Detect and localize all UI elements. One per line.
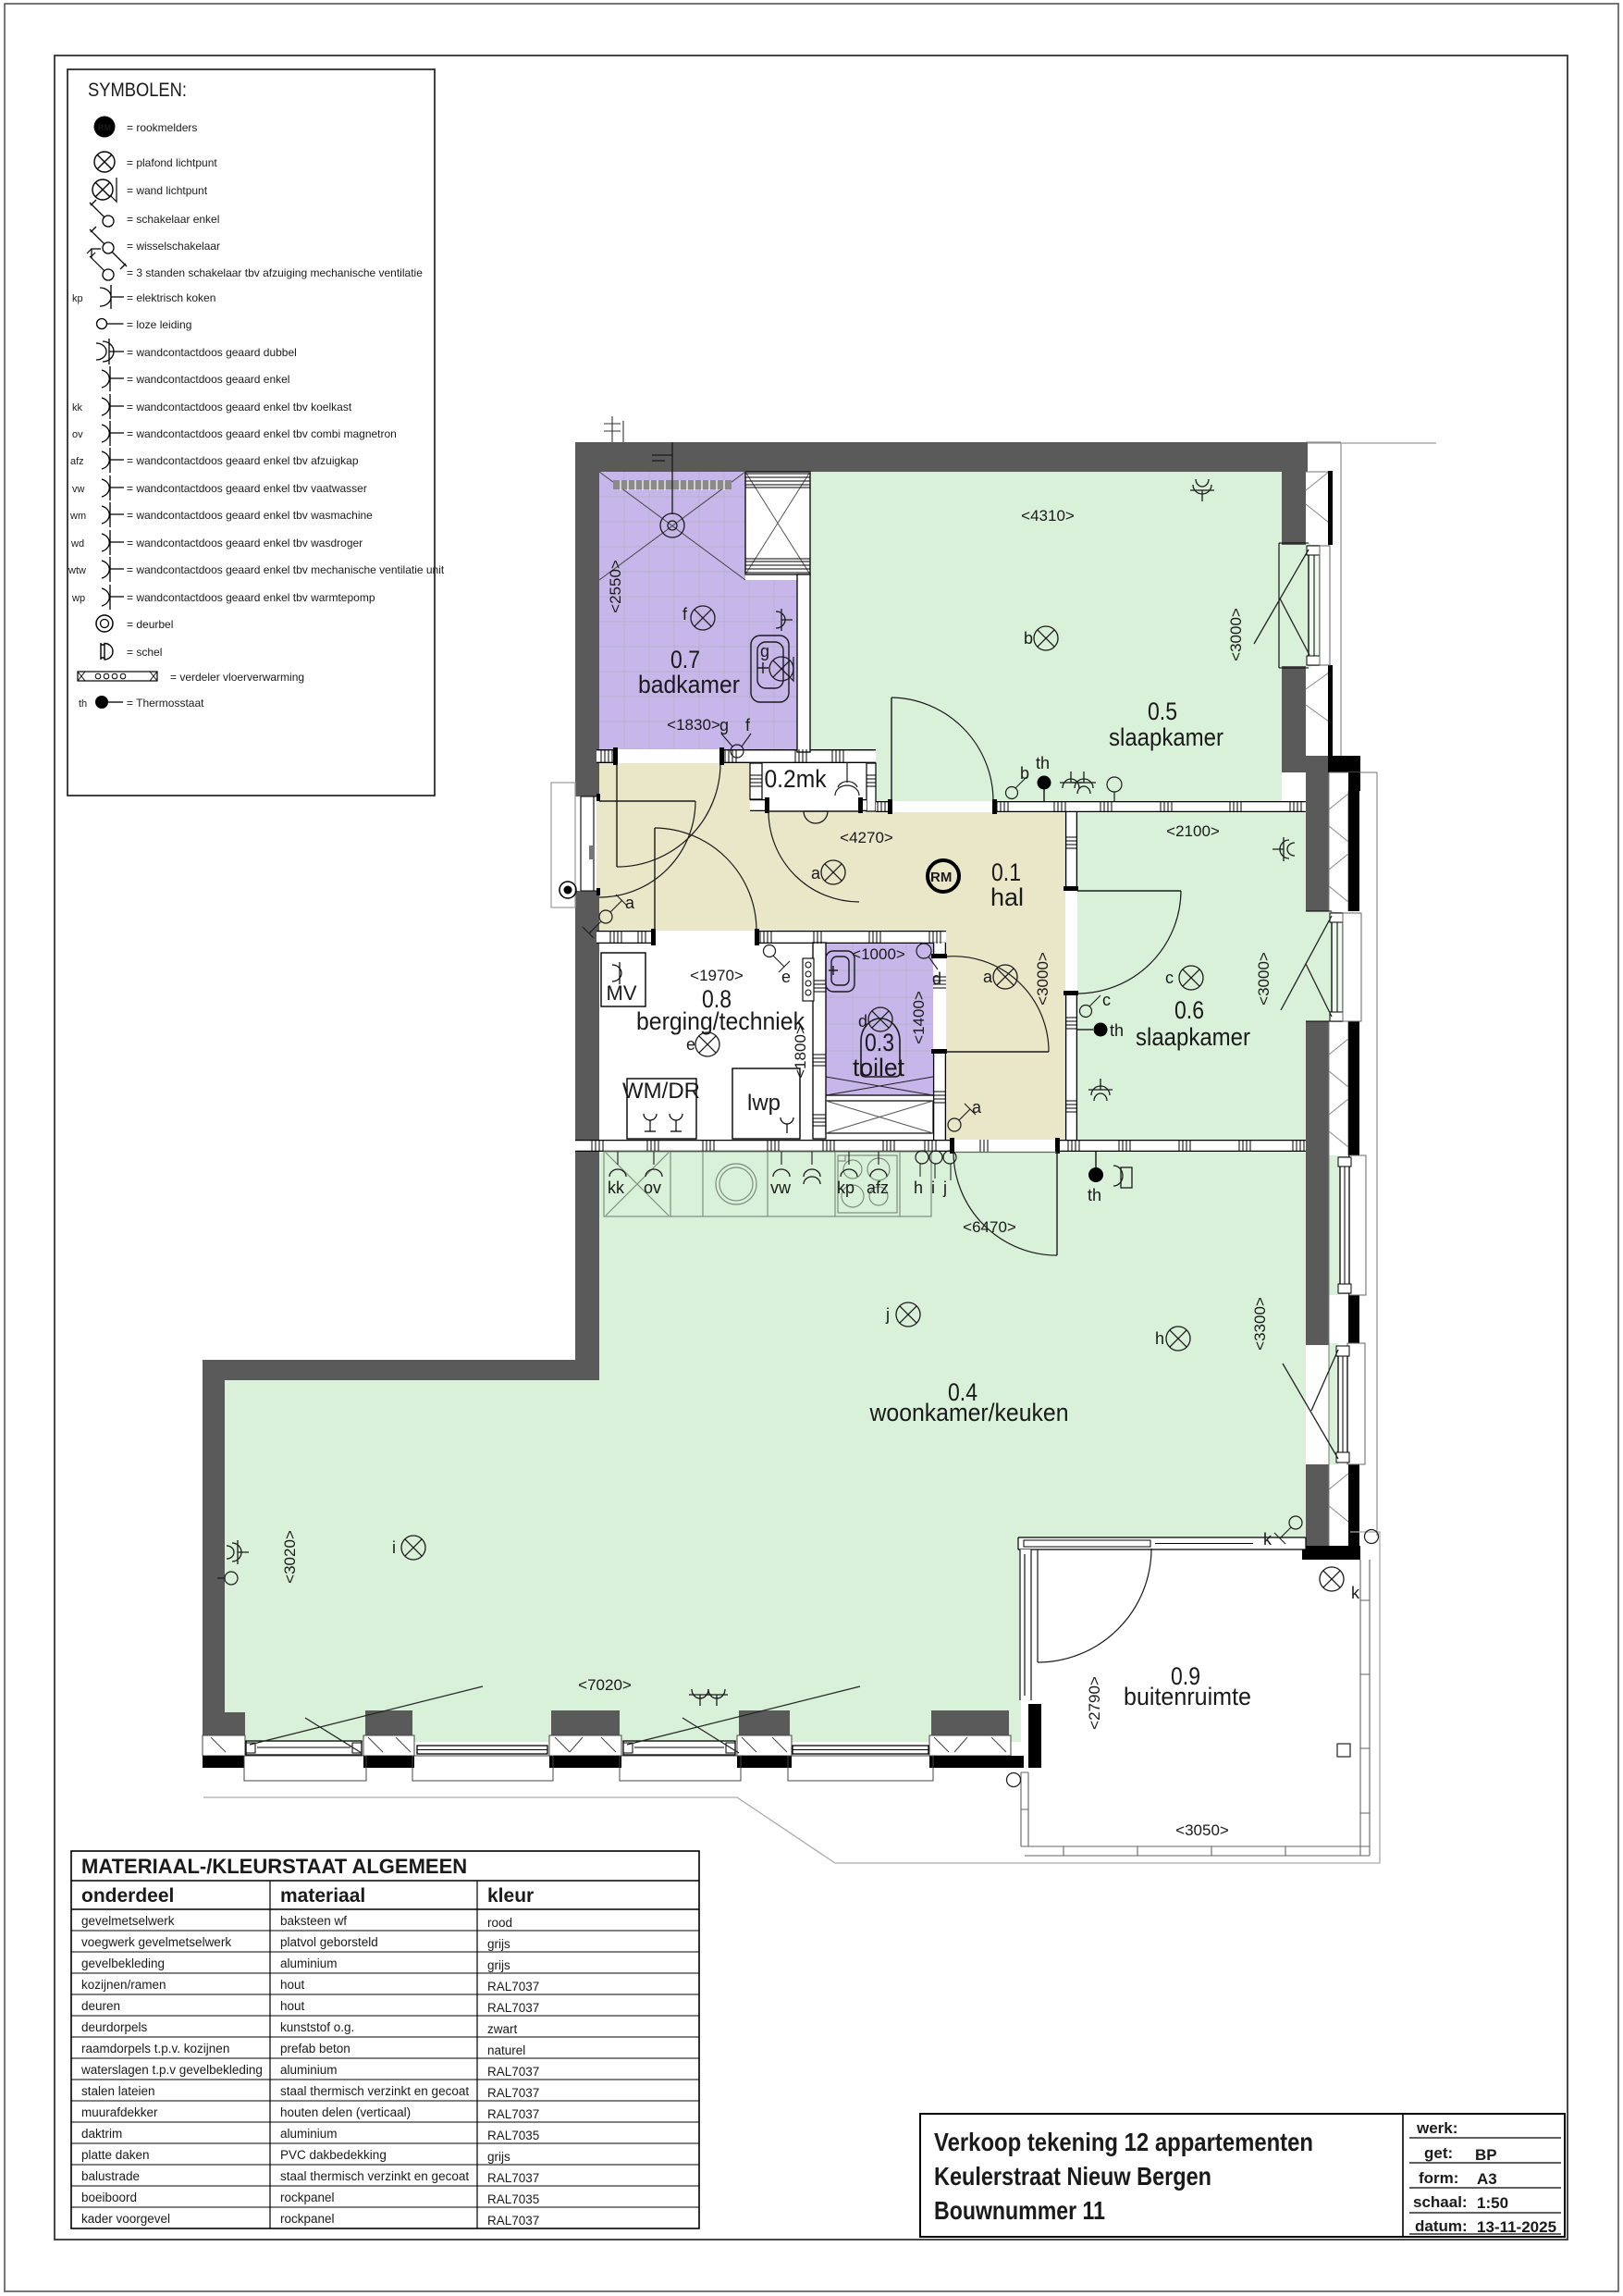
svg-text:<1400>: <1400> [910, 991, 928, 1044]
svg-text:houten delen (verticaal): houten delen (verticaal) [280, 2105, 411, 2119]
svg-text:vw: vw [72, 484, 85, 495]
svg-text:onderdeel: onderdeel [81, 1885, 174, 1907]
svg-text:<2790>: <2790> [1086, 1676, 1103, 1730]
svg-text:Verkoop tekening 12 appartemen: Verkoop tekening 12 appartementen [934, 2128, 1313, 2156]
svg-text:<4310>: <4310> [1021, 507, 1075, 525]
svg-text:grijs: grijs [487, 2150, 510, 2164]
svg-text:th: th [79, 698, 87, 710]
svg-text:vw: vw [770, 1179, 792, 1197]
svg-text:wtw: wtw [68, 565, 86, 576]
svg-text:voegwerk gevelmetselwerk: voegwerk gevelmetselwerk [81, 1935, 231, 1949]
svg-text:0.6: 0.6 [1174, 996, 1204, 1024]
svg-text:c: c [1165, 969, 1174, 987]
svg-text:get:: get: [1424, 2144, 1453, 2162]
svg-text:= Thermosstaat: = Thermosstaat [127, 697, 204, 710]
svg-text:RAL7037: RAL7037 [487, 1980, 539, 1994]
svg-text:0.7: 0.7 [670, 646, 700, 673]
svg-text:muurafdekker: muurafdekker [81, 2105, 158, 2119]
svg-text:deuren: deuren [81, 1999, 120, 2013]
svg-text:slaapkamer: slaapkamer [1109, 723, 1223, 751]
svg-text:RAL7037: RAL7037 [487, 2107, 539, 2121]
svg-text:d: d [932, 969, 941, 988]
svg-text:slaapkamer: slaapkamer [1136, 1023, 1250, 1051]
svg-text:a: a [972, 1098, 982, 1117]
svg-text:<3050>: <3050> [1175, 1821, 1229, 1839]
svg-text:materiaal: materiaal [280, 1885, 365, 1907]
svg-text:<2550>: <2550> [607, 560, 624, 613]
svg-text:13-11-2025: 13-11-2025 [1477, 2218, 1556, 2236]
svg-text:= wandcontactdoos geaard enkel: = wandcontactdoos geaard enkel tbv wasdr… [127, 537, 363, 549]
svg-text:e: e [781, 968, 791, 986]
svg-text:WM/DR: WM/DR [622, 1079, 700, 1104]
svg-text:= verdeler vloerverwarming: = verdeler vloerverwarming [170, 671, 304, 684]
svg-text:aluminium: aluminium [280, 1957, 338, 1970]
svg-text:th: th [1110, 1021, 1124, 1040]
svg-text:stalen lateien: stalen lateien [81, 2084, 155, 2098]
svg-text:hout: hout [280, 1978, 305, 1992]
svg-text:berging/techniek: berging/techniek [636, 1007, 805, 1035]
svg-text:<1800>: <1800> [792, 1025, 809, 1079]
svg-text:toilet: toilet [853, 1054, 904, 1081]
svg-text:<3000>: <3000> [1034, 952, 1051, 1006]
svg-text:RAL7037: RAL7037 [487, 2065, 539, 2079]
svg-text:0.5: 0.5 [1148, 697, 1177, 725]
svg-text:i: i [392, 1538, 396, 1557]
svg-text:k: k [1263, 1530, 1273, 1549]
svg-text:BP: BP [1475, 2146, 1497, 2164]
svg-text:lwp: lwp [747, 1091, 781, 1116]
svg-text:= schel: = schel [127, 646, 162, 659]
svg-text:schaal:: schaal: [1413, 2193, 1468, 2211]
svg-text:kunststof o.g.: kunststof o.g. [280, 2020, 354, 2034]
svg-text:= wandcontactdoos geaard enkel: = wandcontactdoos geaard enkel tbv afzui… [127, 454, 359, 467]
svg-text:kp: kp [72, 293, 83, 304]
svg-text:<3300>: <3300> [1251, 1297, 1269, 1351]
svg-text:kleur: kleur [487, 1885, 534, 1907]
svg-text:<1970>: <1970> [690, 967, 744, 984]
svg-text:= wand lichtpunt: = wand lichtpunt [127, 184, 208, 197]
svg-text:h: h [1155, 1329, 1164, 1348]
svg-text:grijs: grijs [487, 1937, 510, 1951]
svg-text:RAL7037: RAL7037 [487, 2086, 539, 2100]
svg-text:rockpanel: rockpanel [280, 2191, 335, 2204]
svg-text:waterslagen t.p.v gevelbekledi: waterslagen t.p.v gevelbekleding [80, 2063, 263, 2077]
svg-text:aluminium: aluminium [280, 2127, 338, 2141]
svg-text:c: c [1102, 991, 1111, 1009]
svg-text:RAL7037: RAL7037 [487, 2001, 539, 2015]
svg-text:MATERIAAL-/KLEURSTAAT ALGEMEEN: MATERIAAL-/KLEURSTAAT ALGEMEEN [81, 1855, 467, 1878]
svg-text:= 3 standen schakelaar tbv afz: = 3 standen schakelaar tbv afzuiging mec… [127, 266, 423, 279]
svg-text:= loze leiding: = loze leiding [127, 318, 191, 331]
svg-text:d: d [858, 1012, 867, 1031]
svg-text:aluminium: aluminium [280, 2063, 338, 2077]
svg-text:RAL7037: RAL7037 [487, 2171, 539, 2185]
svg-text:ov: ov [72, 429, 83, 440]
svg-text:0.1: 0.1 [991, 858, 1021, 886]
svg-text:SYMBOLEN:: SYMBOLEN: [88, 80, 187, 101]
svg-text:0.2mk: 0.2mk [765, 765, 827, 793]
svg-text:badkamer: badkamer [638, 671, 740, 698]
svg-text:gevelbekleding: gevelbekleding [81, 1957, 165, 1970]
svg-text:<7020>: <7020> [578, 1676, 632, 1694]
svg-text:= plafond lichtpunt: = plafond lichtpunt [127, 156, 217, 169]
svg-text:= deurbel: = deurbel [127, 618, 173, 631]
svg-text:rockpanel: rockpanel [280, 2212, 335, 2226]
svg-text:= wandcontactdoos geaard enkel: = wandcontactdoos geaard enkel tbv warmt… [127, 591, 375, 604]
svg-text:deurdorpels: deurdorpels [81, 2020, 148, 2034]
svg-text:prefab beton: prefab beton [280, 2042, 350, 2055]
svg-text:rood: rood [487, 1916, 512, 1930]
svg-text:a: a [625, 894, 635, 912]
svg-text:MV: MV [607, 981, 637, 1005]
svg-text:form:: form: [1419, 2169, 1458, 2187]
svg-text:<2100>: <2100> [1166, 822, 1220, 840]
svg-text:= wandcontactdoos geaard enkel: = wandcontactdoos geaard enkel tbv koelk… [127, 401, 352, 414]
svg-text:datum:: datum: [1415, 2217, 1468, 2235]
svg-text:naturel: naturel [487, 2043, 525, 2057]
svg-text:raamdorpels t.p.v. kozijnen: raamdorpels t.p.v. kozijnen [81, 2042, 229, 2055]
svg-text:= schakelaar enkel: = schakelaar enkel [127, 213, 219, 226]
svg-text:<1830>: <1830> [667, 716, 720, 734]
svg-text:PVC dakbedekking: PVC dakbedekking [280, 2148, 387, 2162]
svg-text:b: b [1024, 629, 1033, 648]
svg-text:th: th [1088, 1186, 1101, 1204]
svg-text:staal thermisch verzinkt en ge: staal thermisch verzinkt en gecoat [280, 2084, 469, 2098]
svg-text:platvol geborsteld: platvol geborsteld [280, 1935, 378, 1949]
svg-text:= wandcontactdoos geaard enkel: = wandcontactdoos geaard enkel tbv wasma… [127, 509, 373, 522]
svg-text:RM: RM [98, 123, 111, 132]
svg-text:RAL7035: RAL7035 [487, 2129, 539, 2142]
svg-text:<1000>: <1000> [852, 945, 905, 963]
svg-text:wm: wm [69, 511, 86, 522]
svg-text:kozijnen/ramen: kozijnen/ramen [81, 1978, 166, 1992]
svg-text:b: b [1020, 764, 1029, 783]
svg-text:= wandcontactdoos geaard enkel: = wandcontactdoos geaard enkel tbv mecha… [127, 563, 445, 576]
svg-text:g: g [719, 716, 729, 734]
svg-text:staal thermisch verzinkt en ge: staal thermisch verzinkt en gecoat [280, 2169, 469, 2183]
svg-text:= wisselschakelaar: = wisselschakelaar [127, 240, 220, 253]
svg-text:j: j [885, 1305, 890, 1324]
svg-text:hout: hout [280, 1999, 305, 2013]
svg-text:= wandcontactdoos geaard dubbe: = wandcontactdoos geaard dubbel [127, 346, 297, 359]
svg-text:baksteen wf: baksteen wf [280, 1914, 347, 1928]
svg-text:wd: wd [70, 538, 84, 549]
svg-text:g: g [760, 642, 769, 660]
svg-text:Bouwnummer 11: Bouwnummer 11 [934, 2196, 1105, 2225]
svg-text:= rookmelders: = rookmelders [127, 121, 197, 134]
svg-text:= wandcontactdoos geaard enkel: = wandcontactdoos geaard enkel tbv vaatw… [127, 482, 367, 495]
svg-text:platte daken: platte daken [81, 2148, 150, 2162]
svg-text:Keulerstraat Nieuw Bergen: Keulerstraat Nieuw Bergen [934, 2162, 1211, 2191]
svg-text:boeiboord: boeiboord [81, 2191, 137, 2204]
svg-text:grijs: grijs [487, 1958, 510, 1972]
svg-text:ov: ov [644, 1179, 661, 1197]
svg-text:kader voorgevel: kader voorgevel [81, 2212, 170, 2226]
svg-text:1:50: 1:50 [1477, 2194, 1508, 2212]
svg-text:a: a [811, 864, 821, 883]
svg-text:hal: hal [990, 883, 1024, 911]
svg-text:daktrim: daktrim [81, 2127, 122, 2141]
svg-text:<4270>: <4270> [840, 829, 893, 846]
svg-text:RM: RM [930, 870, 952, 885]
svg-text:RAL7037: RAL7037 [487, 2214, 539, 2228]
svg-text:woonkamer/keuken: woonkamer/keuken [869, 1399, 1069, 1426]
svg-text:balustrade: balustrade [81, 2169, 140, 2183]
svg-text:k: k [1351, 1584, 1360, 1602]
svg-text:th: th [1036, 754, 1050, 772]
svg-text:werk:: werk: [1416, 2119, 1457, 2137]
svg-text:0.3: 0.3 [865, 1029, 894, 1056]
svg-text:<3000>: <3000> [1227, 608, 1245, 661]
svg-text:afz: afz [70, 456, 84, 467]
svg-text:kk: kk [72, 402, 83, 414]
svg-text:wp: wp [71, 593, 85, 604]
svg-text:j: j [942, 1179, 947, 1197]
svg-text:buitenruimte: buitenruimte [1124, 1683, 1251, 1710]
svg-text:<3020>: <3020> [281, 1530, 299, 1584]
svg-text:kk: kk [608, 1179, 625, 1197]
svg-text:a: a [983, 968, 993, 986]
svg-text:A3: A3 [1477, 2170, 1497, 2188]
svg-text:kp: kp [837, 1179, 855, 1197]
svg-text:RAL7035: RAL7035 [487, 2192, 539, 2206]
svg-text:i: i [931, 1179, 935, 1197]
svg-text:gevelmetselwerk: gevelmetselwerk [81, 1914, 175, 1928]
svg-text:zwart: zwart [487, 2022, 518, 2036]
svg-text:<6470>: <6470> [963, 1218, 1016, 1236]
svg-text:h: h [914, 1179, 923, 1197]
svg-text:<3000>: <3000> [1255, 952, 1273, 1006]
svg-text:= wandcontactdoos geaard enkel: = wandcontactdoos geaard enkel [127, 373, 289, 386]
svg-text:= elektrisch koken: = elektrisch koken [127, 291, 215, 304]
svg-text:= wandcontactdoos geaard enkel: = wandcontactdoos geaard enkel tbv combi… [127, 427, 397, 440]
svg-text:e: e [686, 1035, 695, 1054]
svg-text:afz: afz [867, 1179, 889, 1197]
